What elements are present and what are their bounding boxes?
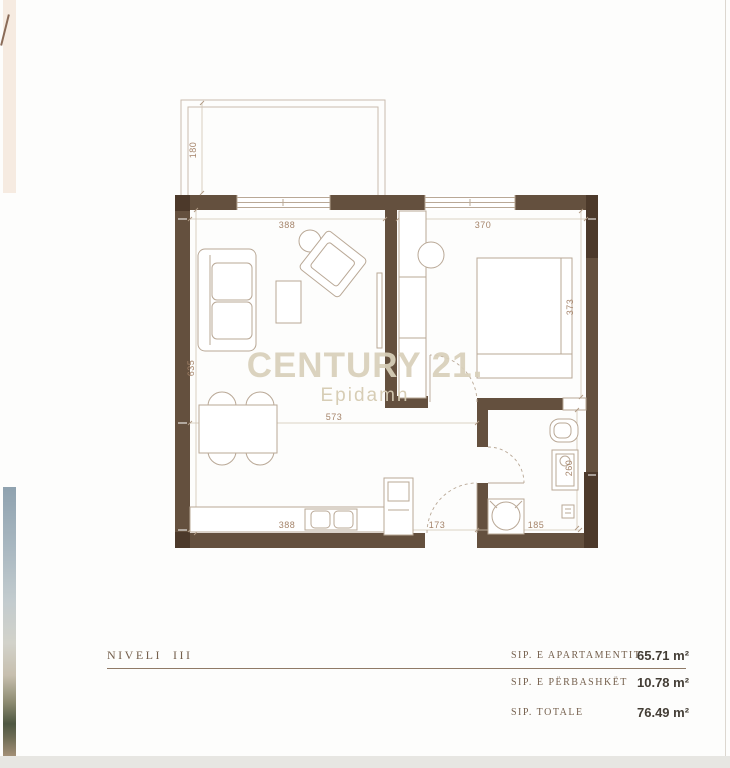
window-living [237, 195, 330, 210]
brand-watermark-sub: Epidamn [240, 385, 490, 407]
dining-table [199, 405, 277, 453]
tv-unit [377, 273, 382, 348]
fridge [384, 478, 413, 535]
area-row-label: SIP. E PËRBASHKËT [511, 677, 628, 688]
coffee-table [276, 281, 301, 323]
dim-kitchen-width-bottom: 388 [279, 520, 296, 530]
dim-balcony-depth: 180 [188, 142, 198, 159]
toilet [550, 419, 578, 442]
area-row-value: 65.71 m² [637, 648, 689, 663]
dim-bedroom-height: 373 [565, 299, 575, 316]
dim-bath-width-bottom: 185 [528, 520, 545, 530]
washing-machine [488, 499, 524, 534]
dim-bath-height: 260 [564, 460, 574, 477]
dim-left-height: 635 [186, 360, 196, 377]
radiator [562, 505, 574, 518]
dim-living-width-mid: 573 [326, 412, 343, 422]
level-title: NIVELI III [107, 648, 192, 663]
dim-hall-width-bottom: 173 [429, 520, 446, 530]
dim-living-width-top: 388 [279, 220, 296, 230]
balcony [181, 100, 385, 195]
page: 388 370 573 388 173 185 180 635 373 260 … [0, 0, 730, 768]
bedroom-stool [418, 242, 444, 268]
window-bedroom [425, 195, 515, 210]
area-row-value: 10.78 m² [637, 675, 689, 690]
brand-watermark: CENTURY 21. [210, 346, 520, 386]
area-row-label: SIP. TOTALE [511, 707, 584, 718]
footer-band [0, 756, 730, 768]
dim-bedroom-width-top: 370 [475, 220, 492, 230]
area-row-label: SIP. E APARTAMENTIT [511, 650, 641, 661]
shaft-niche [563, 398, 586, 410]
area-row-value: 76.49 m² [637, 705, 689, 720]
legend-divider [107, 668, 686, 669]
sofa [198, 249, 256, 351]
